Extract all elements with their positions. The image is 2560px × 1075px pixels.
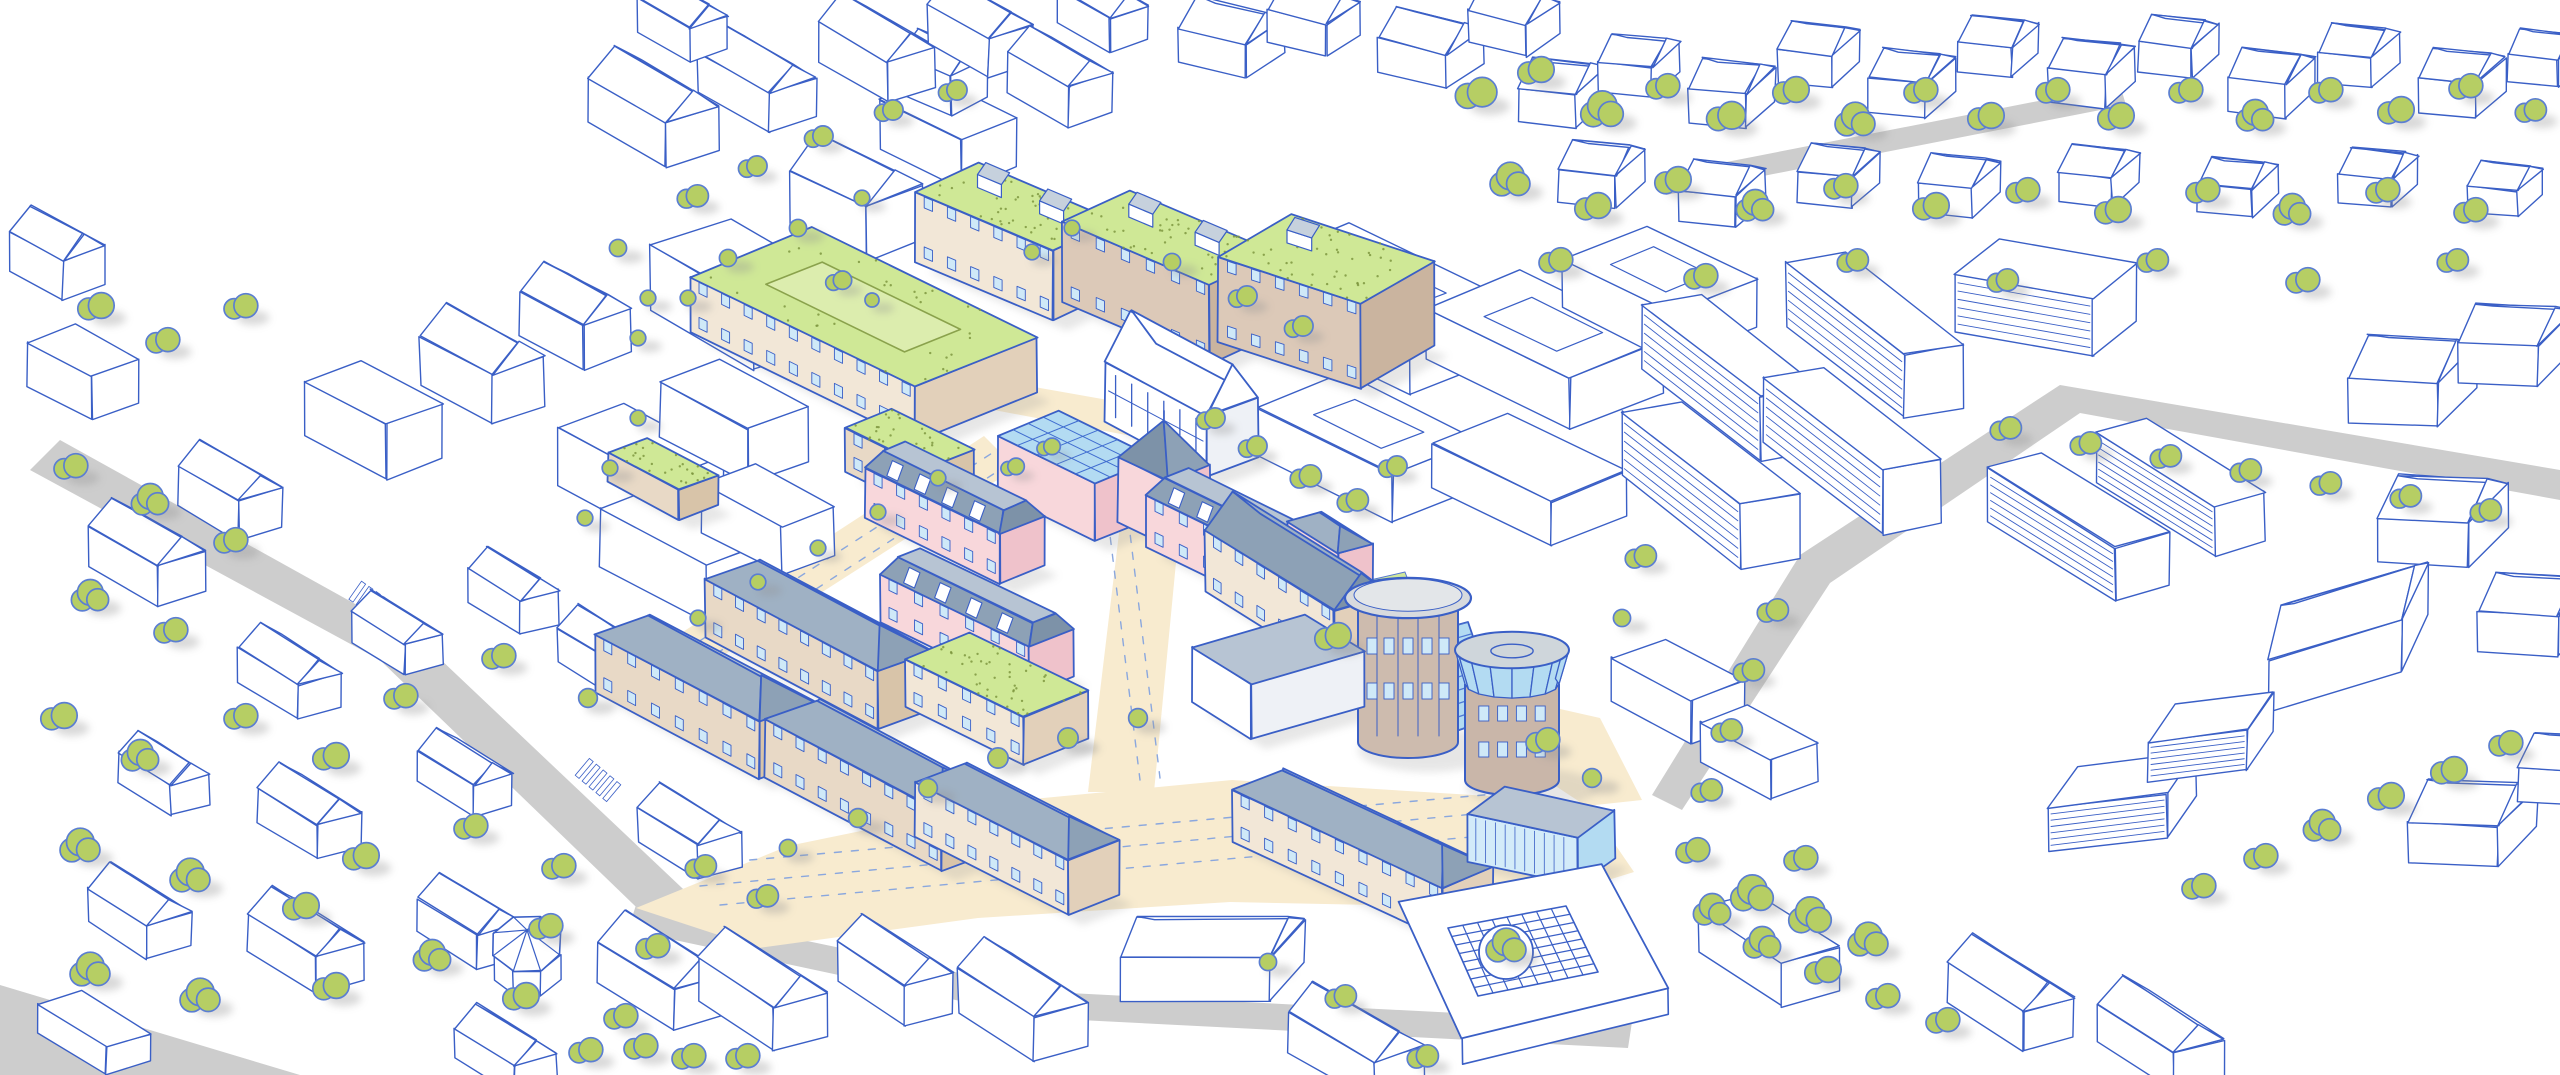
tree <box>1129 709 1148 728</box>
tree <box>482 644 516 669</box>
tree <box>690 610 706 626</box>
tree <box>2303 810 2340 841</box>
tree <box>1163 253 1180 270</box>
tree <box>865 293 879 307</box>
tree <box>1259 953 1276 970</box>
tree <box>2489 731 2523 756</box>
tree <box>60 828 100 862</box>
tree <box>672 1044 706 1069</box>
tree <box>2286 268 2320 293</box>
tree <box>854 190 870 206</box>
tree <box>1990 417 2021 440</box>
tree <box>988 748 1008 768</box>
tree <box>542 854 576 879</box>
shape <box>2517 768 2560 806</box>
tree <box>154 618 188 643</box>
tree <box>789 219 806 236</box>
shape <box>2458 341 2539 386</box>
context-building <box>1432 413 1627 545</box>
context-building <box>2268 562 2429 712</box>
tree <box>1968 103 2004 130</box>
context-building <box>637 0 728 62</box>
tree <box>677 185 708 208</box>
tree <box>1757 599 1788 622</box>
tree <box>1731 875 1774 911</box>
context-building <box>1954 239 2137 357</box>
tree <box>640 290 656 306</box>
shape <box>1121 917 1289 957</box>
context-building <box>1120 916 1305 1001</box>
tree <box>224 704 258 729</box>
tree <box>2137 249 2168 272</box>
tree <box>810 540 826 556</box>
water-tower2-top <box>1455 632 1569 668</box>
tree <box>454 814 488 839</box>
shape <box>2479 572 2560 616</box>
context-building <box>351 589 443 675</box>
tree <box>2437 249 2468 272</box>
context-building <box>10 205 106 301</box>
tree <box>1655 167 1691 194</box>
tree <box>1613 609 1630 626</box>
tree <box>41 703 77 730</box>
context-building <box>837 914 954 1027</box>
tree <box>630 410 646 426</box>
context-building <box>27 324 139 420</box>
context-building <box>2097 975 2224 1075</box>
tree <box>1325 985 1356 1008</box>
tree <box>738 156 767 177</box>
tree <box>170 858 210 892</box>
tree <box>2273 194 2310 225</box>
tree <box>2454 198 2488 223</box>
tree <box>2230 459 2261 482</box>
tree <box>2378 97 2414 124</box>
tree <box>313 743 349 770</box>
tree <box>569 1038 603 1063</box>
tree <box>1693 894 1730 925</box>
tree <box>70 952 110 986</box>
tree <box>1455 77 1497 108</box>
tree <box>2310 472 2341 495</box>
water-tower-body <box>1358 598 1458 758</box>
shape <box>1137 916 1304 919</box>
masterplan-illustration <box>0 0 2560 1075</box>
context-building <box>1957 15 2039 78</box>
window <box>1252 334 1261 348</box>
tree <box>579 689 598 708</box>
tree <box>1058 728 1078 748</box>
tree <box>750 574 766 590</box>
tree <box>2182 874 2216 899</box>
tree <box>604 1004 638 1029</box>
tree <box>1784 846 1818 871</box>
shape <box>1120 957 1270 1001</box>
context-building <box>2138 14 2220 78</box>
tree <box>1490 162 1530 196</box>
window <box>1347 365 1356 379</box>
context-building <box>2228 47 2316 119</box>
tree <box>726 1044 760 1069</box>
window <box>1228 326 1237 340</box>
context-building <box>257 762 362 859</box>
tree <box>930 470 946 486</box>
window <box>1323 357 1332 371</box>
tree <box>146 328 180 353</box>
context-building <box>957 937 1088 1062</box>
context-building <box>2507 28 2560 87</box>
shape <box>1740 494 1800 569</box>
tree <box>609 239 626 256</box>
context-building <box>2477 572 2560 657</box>
tree <box>2070 432 2101 455</box>
context-building <box>818 0 935 102</box>
context-building <box>2147 692 2274 782</box>
tree <box>1024 244 1040 260</box>
context-building <box>1057 0 1148 53</box>
tree <box>2368 783 2404 810</box>
tree <box>384 684 418 709</box>
tree <box>719 249 736 266</box>
tree <box>1789 897 1832 933</box>
shape <box>2407 822 2499 867</box>
tree <box>78 293 114 320</box>
tree <box>1539 248 1573 273</box>
tree <box>2431 757 2467 784</box>
tree <box>1518 57 1554 84</box>
context-building <box>468 546 560 634</box>
shape <box>2477 612 2559 657</box>
shape <box>1883 460 1941 536</box>
tree <box>2169 78 2203 103</box>
tree <box>804 126 833 147</box>
tree <box>870 504 886 520</box>
tree <box>2244 844 2278 869</box>
tree <box>624 1034 658 1059</box>
window <box>1275 342 1284 356</box>
tree <box>1848 922 1888 956</box>
context-building <box>2458 303 2560 387</box>
glass-crown-panel <box>1490 667 1512 698</box>
tree <box>779 839 796 856</box>
tree <box>1625 545 1656 568</box>
shape <box>2348 378 2439 426</box>
tree <box>680 290 696 306</box>
tree <box>2186 178 2220 203</box>
tree <box>1866 984 1900 1009</box>
shape <box>1519 89 1577 129</box>
tree <box>1676 838 1710 863</box>
tree <box>2036 78 2070 103</box>
window <box>1299 350 1308 364</box>
tree <box>71 580 108 611</box>
tree <box>602 460 618 476</box>
illustration-canvas <box>0 0 2560 1075</box>
tree <box>874 100 903 121</box>
context-building <box>237 622 342 719</box>
context-building <box>2057 144 2140 208</box>
shape <box>2378 519 2469 568</box>
tree <box>919 779 938 798</box>
tree <box>2006 178 2040 203</box>
tree <box>1583 769 1602 788</box>
tree <box>2515 99 2546 122</box>
tree <box>849 809 868 828</box>
shape <box>1903 344 1963 418</box>
tree <box>180 978 220 1012</box>
tree <box>577 510 593 526</box>
tree <box>1926 1008 1960 1033</box>
tree <box>630 330 646 346</box>
context-building <box>1777 21 1860 88</box>
tree <box>1064 220 1080 236</box>
tree <box>224 294 258 319</box>
